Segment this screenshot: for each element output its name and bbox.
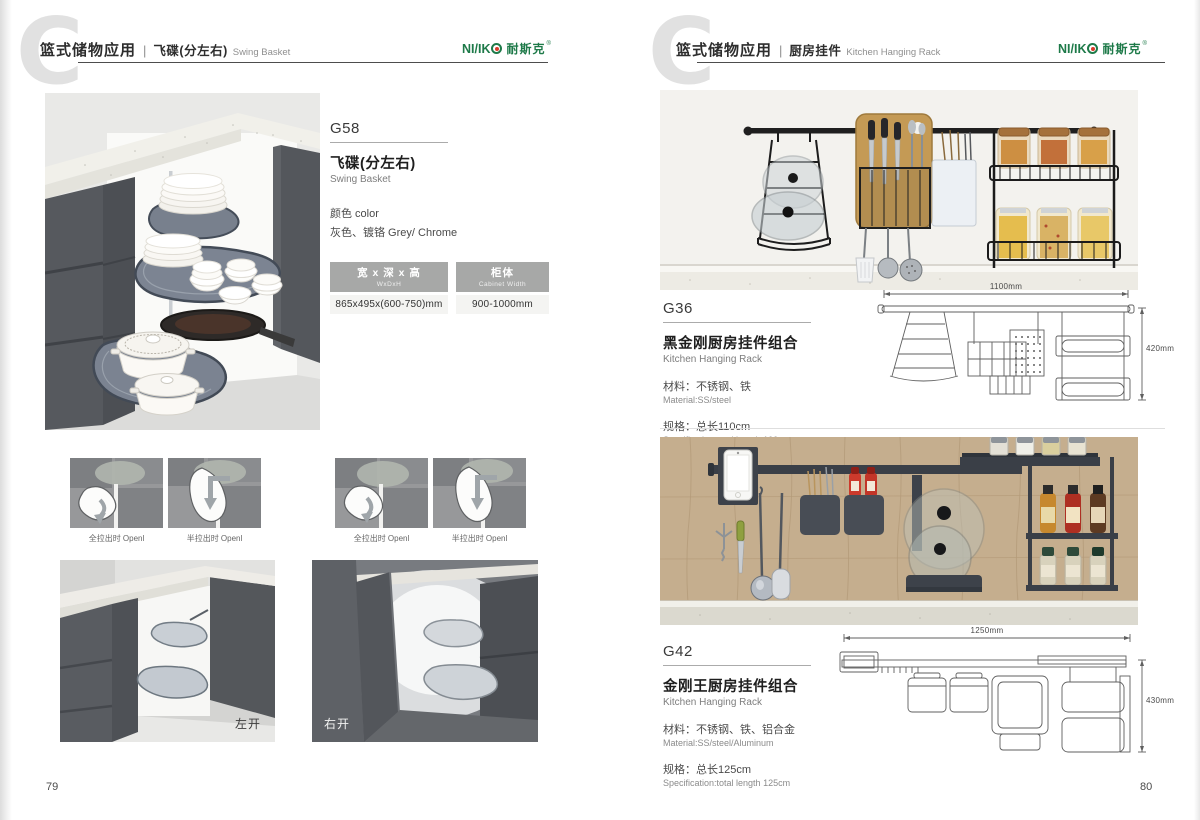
cabinet-value: 900-1000mm <box>456 295 549 314</box>
right-open-photo: 右开 <box>312 560 538 742</box>
logo-dot-icon <box>495 47 499 51</box>
g36-drawing-lines <box>870 284 1170 416</box>
diagram-caption: 半拉出时 Openl <box>433 533 526 544</box>
right-open-label: 右开 <box>324 715 350 732</box>
right-header-subcategory: 厨房挂件 <box>789 40 841 59</box>
g42-technical-drawing: 1250mm 430mm <box>830 626 1170 762</box>
size-value: 865x495x(600-750)mm <box>330 295 448 314</box>
diagram-full-open-2: 全拉出时 Openl <box>335 458 428 544</box>
logo-reg-mark: ® <box>547 41 551 47</box>
g42-rack-photo <box>660 437 1138 625</box>
swing-basket-photo-illustration <box>45 93 320 430</box>
left-open-photo: 左开 <box>60 560 275 742</box>
size-table-header: 宽 x 深 x 高 WxDxH <box>330 262 448 292</box>
size-header-cn: 宽 x 深 x 高 <box>330 265 448 280</box>
diagram-half-open-1: 半拉出时 Openl <box>168 458 261 544</box>
casserole-pot <box>130 374 204 416</box>
soup-pot <box>111 332 195 379</box>
left-page-number: 79 <box>46 781 58 793</box>
page-edge-right <box>1194 0 1200 820</box>
right-page-number: 80 <box>1140 781 1152 793</box>
material-en: Material:SS/steel <box>663 395 878 405</box>
spice-jars <box>1040 547 1106 585</box>
diagram-half-open-2: 半拉出时 Openl <box>433 458 526 544</box>
diagram-full-open-illustration <box>70 458 163 528</box>
sauce-bottles <box>1040 485 1106 533</box>
logo-o-icon <box>491 43 502 54</box>
page-edge-left <box>0 0 12 820</box>
left-page-header: 篮式储物应用 | 飞碟(分左右) Swing Basket <box>40 39 290 60</box>
logo-cn: 耐斯克 <box>1102 40 1141 57</box>
right-page-section-divider <box>660 428 1165 429</box>
diagram-full-open-illustration <box>335 458 428 528</box>
cabinet-header-cn: 柜体 <box>456 265 549 280</box>
cabinet-header-en: Cabinet Width <box>456 281 549 288</box>
product-code: G58 <box>330 120 562 137</box>
swing-basket-photo <box>45 93 320 430</box>
g36-rack-illustration <box>660 90 1138 290</box>
left-header-divider: | <box>143 43 146 58</box>
product-name-cn: 黑金刚厨房挂件组合 <box>663 332 878 353</box>
color-label: 颜色 color <box>330 205 562 221</box>
product-name-en: Swing Basket <box>330 174 562 185</box>
size-table-col-dimensions: 宽 x 深 x 高 WxDxH 865x495x(600-750)mm <box>330 262 448 314</box>
diagram-caption: 全拉出时 Openl <box>335 533 428 544</box>
right-page-header: 篮式储物应用 | 厨房挂件 Kitchen Hanging Rack <box>676 39 940 60</box>
bottom-jars <box>996 208 1112 260</box>
product-code-rule <box>330 142 448 143</box>
right-header-divider: | <box>779 43 782 58</box>
left-header-subcategory: 飞碟(分左右) <box>153 40 227 59</box>
product-name-en: Kitchen Hanging Rack <box>663 354 878 365</box>
product-code: G36 <box>663 300 878 317</box>
left-open-label: 左开 <box>235 715 261 732</box>
logo-latin: NI/IK <box>1058 42 1086 56</box>
nisko-logo: NI/IK 耐斯克 ® <box>462 40 551 57</box>
right-header-subcategory-en: Kitchen Hanging Rack <box>846 47 940 58</box>
color-value: 灰色、镀铬 Grey/ Chrome <box>330 224 562 240</box>
spec-cn: 规格：总长110cm <box>663 418 878 434</box>
logo-reg-mark: ® <box>1143 41 1147 47</box>
left-header-rule <box>78 62 548 63</box>
logo-dot-icon <box>1091 47 1095 51</box>
product-info-g36: G36 黑金刚厨房挂件组合 Kitchen Hanging Rack 材料：不锈… <box>663 300 878 445</box>
g36-technical-drawing: 1100mm 420mm <box>870 284 1170 416</box>
diagram-caption: 全拉出时 Openl <box>70 533 163 544</box>
logo-o-icon <box>1087 43 1098 54</box>
diagram-half-open-illustration <box>433 458 526 528</box>
diagram-full-open-1: 全拉出时 Openl <box>70 458 163 544</box>
spec-cn: 规格：总长125cm <box>663 761 893 777</box>
size-table-col-cabinet: 柜体 Cabinet Width 900-1000mm <box>456 262 549 314</box>
cabinet-header: 柜体 Cabinet Width <box>456 262 549 292</box>
dim-height-label: 420mm <box>1146 344 1174 353</box>
left-header-subcategory-en: Swing Basket <box>233 47 291 58</box>
right-header-category: 篮式储物应用 <box>676 39 772 60</box>
logo-cn: 耐斯克 <box>506 40 545 57</box>
right-header-rule <box>697 62 1165 63</box>
product-code-rule <box>663 322 811 323</box>
product-info-g58: G58 飞碟(分左右) Swing Basket 颜色 color 灰色、镀铬 … <box>330 120 562 314</box>
dim-height-label: 430mm <box>1146 696 1174 705</box>
nisko-logo: NI/IK 耐斯克 ® <box>1058 40 1147 57</box>
dim-width-label: 1100mm <box>884 282 1128 291</box>
size-header-en: WxDxH <box>330 281 448 288</box>
dim-width-label: 1250mm <box>844 626 1130 635</box>
product-name-cn: 飞碟(分左右) <box>330 152 562 173</box>
g42-rack-illustration <box>660 437 1138 625</box>
spec-en: Specification:total length 125cm <box>663 778 893 788</box>
size-table: 宽 x 深 x 高 WxDxH 865x495x(600-750)mm 柜体 C… <box>330 262 562 314</box>
product-code-rule <box>663 665 811 666</box>
diagram-half-open-illustration <box>168 458 261 528</box>
g42-drawing-lines <box>830 626 1170 762</box>
left-header-category: 篮式储物应用 <box>40 39 136 60</box>
logo-latin: NI/IK <box>462 42 490 56</box>
top-jars <box>998 128 1110 168</box>
g36-rack-photo <box>660 90 1138 290</box>
material-cn: 材料：不锈钢、铁 <box>663 378 878 394</box>
diagram-caption: 半拉出时 Openl <box>168 533 261 544</box>
